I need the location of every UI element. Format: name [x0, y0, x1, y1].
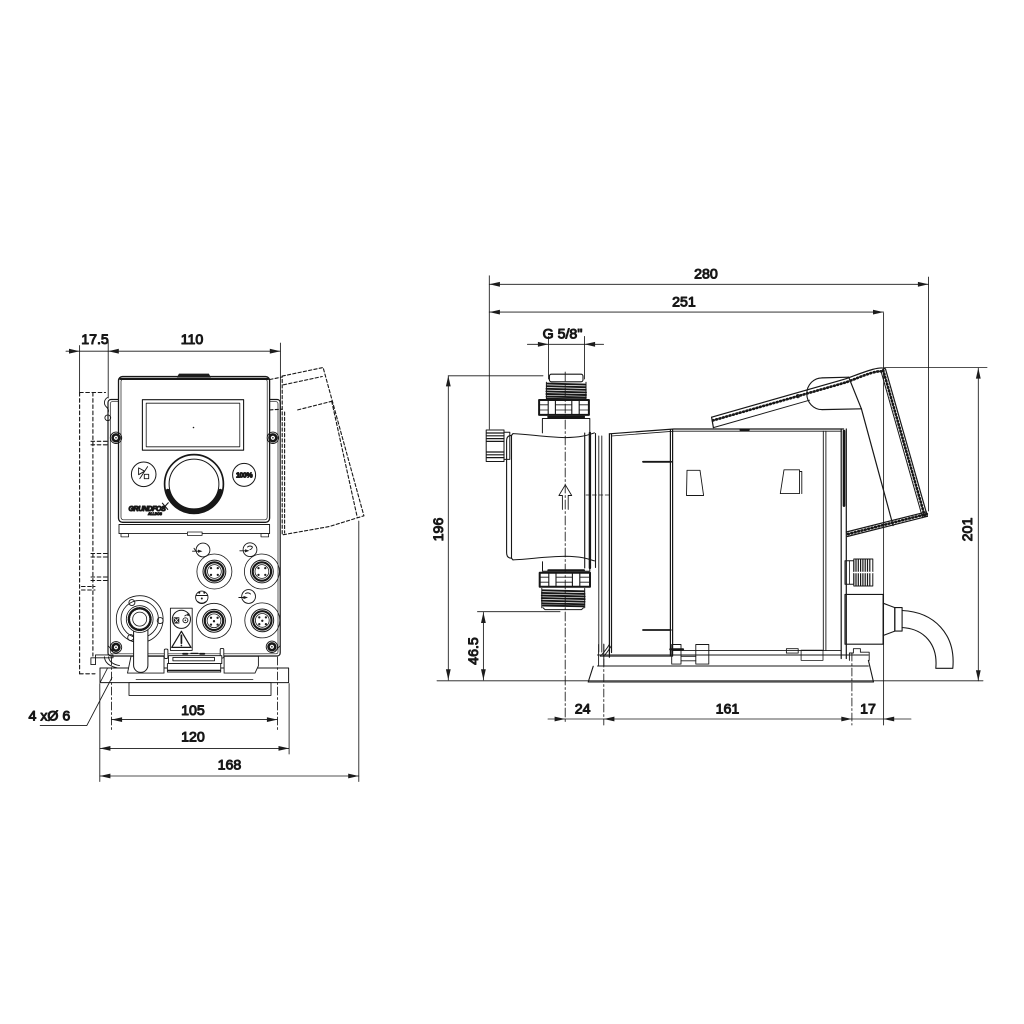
- svg-text:201: 201: [960, 518, 976, 542]
- svg-text:105: 105: [181, 703, 205, 719]
- svg-text:46.5: 46.5: [466, 637, 482, 665]
- svg-text:24: 24: [575, 702, 591, 718]
- svg-text:4 xØ 6: 4 xØ 6: [29, 709, 71, 725]
- svg-text:196: 196: [431, 518, 447, 542]
- svg-text:251: 251: [672, 294, 696, 310]
- svg-text:168: 168: [218, 758, 242, 774]
- svg-text:161: 161: [716, 702, 740, 718]
- svg-text:110: 110: [181, 332, 204, 348]
- svg-text:17: 17: [860, 702, 876, 718]
- svg-text:17.5: 17.5: [81, 332, 109, 348]
- svg-text:120: 120: [181, 729, 205, 745]
- svg-text:280: 280: [694, 267, 718, 283]
- svg-text:G 5/8": G 5/8": [543, 327, 583, 343]
- svg-text:ALLDOS: ALLDOS: [147, 512, 163, 516]
- svg-text:100%: 100%: [236, 472, 253, 479]
